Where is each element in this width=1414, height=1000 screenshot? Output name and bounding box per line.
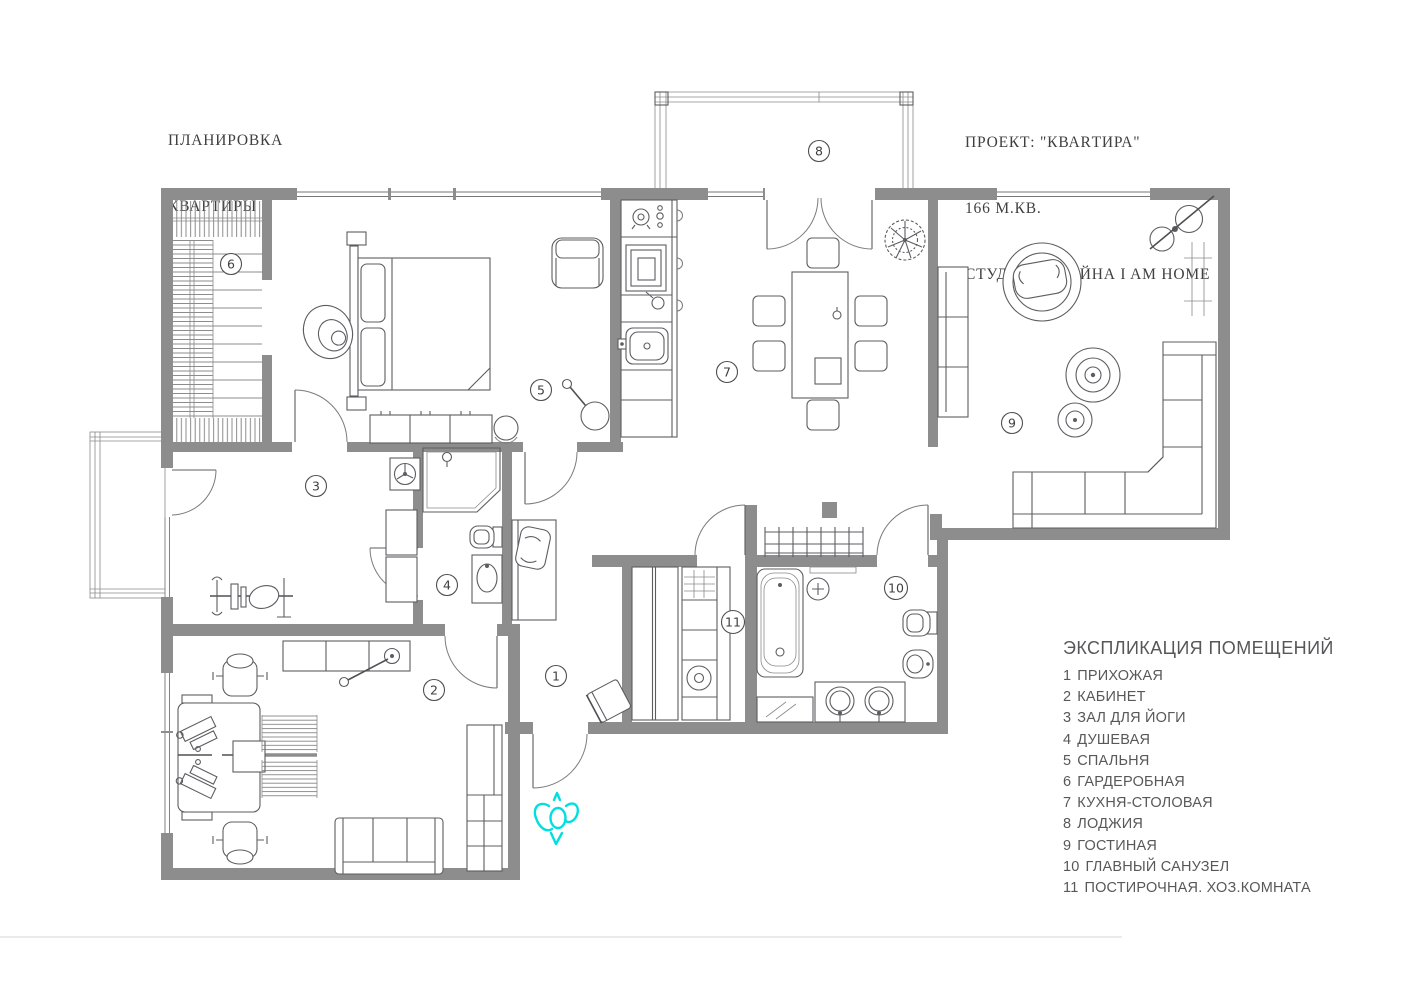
svg-text:9: 9	[1008, 416, 1016, 431]
room-marker-6: 6	[221, 254, 242, 275]
mirror-icon	[757, 697, 813, 722]
room-marker-10: 10	[885, 577, 908, 600]
office-sofa-icon	[335, 818, 443, 874]
dining-table-icon	[792, 272, 848, 398]
oven-icon	[626, 245, 666, 291]
coffee-tables-icon	[1058, 348, 1120, 437]
washing-machine-icon	[390, 458, 420, 490]
svg-text:3: 3	[312, 479, 320, 494]
kitchen-window	[708, 188, 763, 200]
room-laundry	[632, 567, 730, 720]
room-marker-7: 7	[717, 362, 738, 383]
dresser-icon	[370, 411, 492, 443]
room-marker-1: 1	[546, 666, 567, 687]
room-bedroom	[295, 232, 609, 443]
washbasin-icon	[472, 555, 502, 603]
yoga-window	[161, 517, 173, 597]
office-cabinet-icon	[467, 725, 502, 871]
drying-rack-icon	[765, 527, 863, 557]
bathroom-door	[877, 505, 928, 555]
laundry-door	[695, 505, 745, 555]
person-figure-icon	[535, 793, 578, 844]
room-loggia	[655, 92, 913, 188]
bench-icon	[512, 520, 556, 620]
office-windows	[161, 673, 173, 833]
bedroom-hall-door	[525, 452, 577, 504]
bedroom-chair-icon	[552, 238, 603, 288]
double-vanity-icon	[815, 682, 905, 722]
room-marker-11: 11	[722, 611, 745, 634]
ceiling-light-icon	[807, 578, 829, 600]
room-hallway	[512, 520, 632, 844]
bedroom-window	[297, 188, 601, 200]
balcony-door	[172, 470, 216, 515]
room-marker-3: 3	[306, 476, 327, 497]
room-wardrobe	[173, 201, 262, 442]
office-chair-icon	[213, 654, 267, 696]
room-marker-9: 9	[1002, 413, 1023, 434]
svg-text:11: 11	[725, 615, 741, 630]
svg-text:7: 7	[723, 365, 731, 380]
svg-text:4: 4	[443, 578, 451, 593]
bathtub-icon	[757, 569, 803, 677]
kitchen-sink-icon	[618, 328, 668, 364]
toilet-icon	[470, 526, 502, 548]
room-office	[175, 641, 502, 874]
bath-shelf-icon	[810, 567, 856, 573]
entrance-door	[533, 734, 587, 788]
double-bed-icon	[350, 246, 490, 396]
room-marker-2: 2	[424, 680, 445, 701]
plant-icon	[885, 220, 925, 260]
tv-console-icon	[938, 267, 968, 417]
papasan-chair-icon	[1003, 243, 1081, 321]
svg-text:5: 5	[537, 383, 545, 398]
room-shower	[423, 448, 502, 603]
shelving-icon	[173, 240, 213, 418]
room-marker-5: 5	[531, 380, 552, 401]
living-window	[997, 188, 1150, 200]
nightstand-icon	[347, 232, 366, 245]
floor-plan: 1 2 3 4 5 6 7 8 9 10 11	[0, 0, 1414, 1000]
double-desk-icon	[175, 695, 317, 820]
svg-text:8: 8	[815, 144, 823, 159]
svg-text:1: 1	[552, 669, 560, 684]
bidet-icon	[903, 650, 933, 678]
floor-lamp-icon	[563, 380, 610, 431]
bedroom-yoga-door	[295, 390, 347, 442]
svg-text:6: 6	[227, 257, 235, 272]
office-door	[445, 636, 497, 688]
hanging-rail-icon	[173, 201, 262, 237]
office-chair-icon	[213, 822, 267, 864]
nightstand-icon	[347, 397, 366, 410]
shower-cabin-icon	[423, 448, 500, 512]
room-living	[938, 196, 1216, 528]
cabinet-icon	[386, 557, 417, 602]
loggia-post-icon	[900, 92, 913, 105]
radiator-icon	[1184, 242, 1212, 316]
room-marker-8: 8	[809, 141, 830, 162]
gym-equipment-icon	[210, 577, 293, 617]
laundry-shelving-icon	[632, 567, 678, 720]
toilet-icon	[903, 610, 937, 636]
room-kitchen-dining	[753, 220, 925, 430]
hanging-rail-icon	[173, 418, 262, 442]
balcony-left	[90, 432, 165, 598]
svg-text:10: 10	[888, 581, 904, 596]
room-marker-4: 4	[437, 575, 458, 596]
svg-text:2: 2	[430, 683, 438, 698]
washer-dryer-stack-icon	[682, 567, 730, 720]
cabinet-icon	[386, 510, 417, 555]
cooktop-icon	[632, 206, 663, 229]
pouf-icon	[494, 416, 518, 443]
kitchen-counter	[618, 200, 683, 437]
